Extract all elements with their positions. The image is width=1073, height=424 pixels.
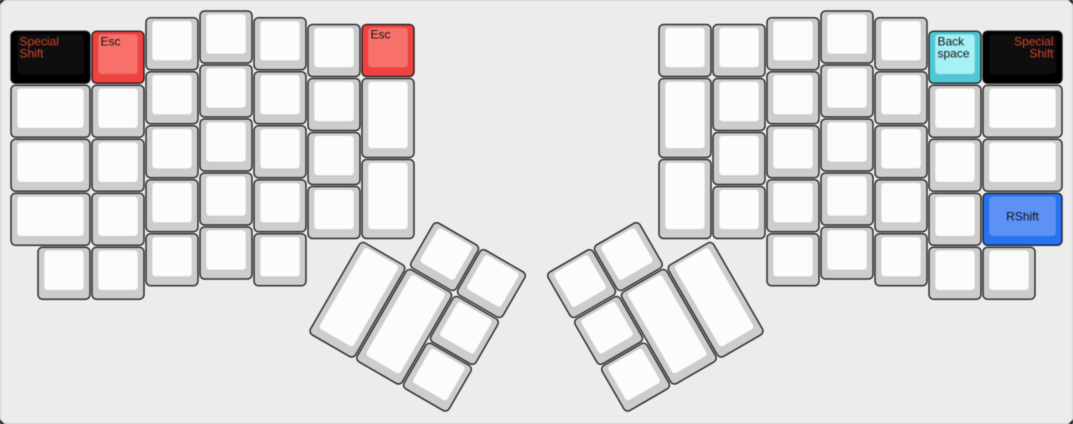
svg-text:space: space [938, 46, 970, 60]
svg-text:Shift: Shift [20, 46, 45, 60]
svg-text:Esc: Esc [371, 28, 391, 42]
svg-text:Shift: Shift [1029, 46, 1054, 60]
svg-text:Esc: Esc [101, 34, 121, 48]
svg-text:RShift: RShift [1006, 209, 1039, 223]
